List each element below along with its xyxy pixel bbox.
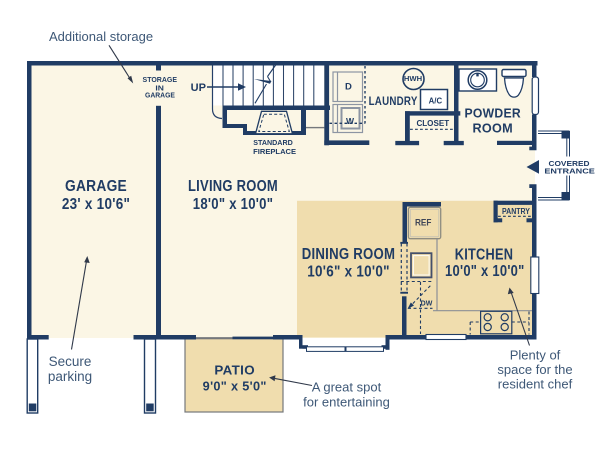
svg-text:GARAGE: GARAGE [145, 93, 175, 100]
svg-text:LIVING ROOM: LIVING ROOM [188, 178, 278, 195]
svg-text:space for the: space for the [497, 362, 572, 377]
svg-text:23' x 10'6": 23' x 10'6" [62, 196, 130, 213]
svg-text:HWH: HWH [404, 74, 422, 83]
svg-text:IN: IN [155, 85, 164, 92]
svg-text:ROOM: ROOM [472, 120, 513, 135]
svg-text:10'0" x 10'0": 10'0" x 10'0" [445, 263, 525, 280]
svg-text:REF: REF [415, 218, 432, 228]
svg-text:for entertaining: for entertaining [303, 395, 390, 410]
svg-text:9'0" x 5'0": 9'0" x 5'0" [203, 379, 267, 393]
svg-text:LAUNDRY: LAUNDRY [369, 94, 418, 108]
svg-text:DW: DW [421, 301, 433, 308]
svg-text:18'0" x 10'0": 18'0" x 10'0" [193, 196, 273, 213]
svg-text:PANTRY: PANTRY [502, 207, 530, 216]
svg-text:10'6" x 10'0": 10'6" x 10'0" [307, 264, 390, 281]
svg-text:KITCHEN: KITCHEN [455, 247, 514, 264]
svg-text:GARAGE: GARAGE [65, 178, 127, 195]
svg-text:Plenty of: Plenty of [510, 348, 561, 363]
svg-text:parking: parking [48, 369, 92, 384]
svg-text:PATIO: PATIO [214, 364, 255, 378]
svg-text:ENTRANCE: ENTRANCE [544, 168, 595, 175]
svg-text:resident chef: resident chef [498, 377, 573, 392]
svg-text:COVERED: COVERED [549, 161, 590, 168]
svg-text:POWDER: POWDER [464, 105, 521, 120]
svg-text:STANDARD: STANDARD [253, 138, 293, 147]
svg-text:CLOSET: CLOSET [416, 118, 449, 128]
svg-text:Secure: Secure [49, 354, 92, 369]
svg-text:A/C: A/C [429, 97, 443, 106]
svg-text:A great spot: A great spot [312, 380, 382, 395]
svg-text:W: W [346, 116, 355, 126]
svg-text:STORAGE: STORAGE [143, 77, 178, 84]
svg-text:D: D [345, 82, 352, 93]
svg-text:Additional storage: Additional storage [49, 29, 153, 44]
svg-text:UP: UP [191, 82, 206, 94]
svg-text:FIREPLACE: FIREPLACE [253, 147, 296, 156]
svg-text:DINING ROOM: DINING ROOM [302, 246, 396, 263]
